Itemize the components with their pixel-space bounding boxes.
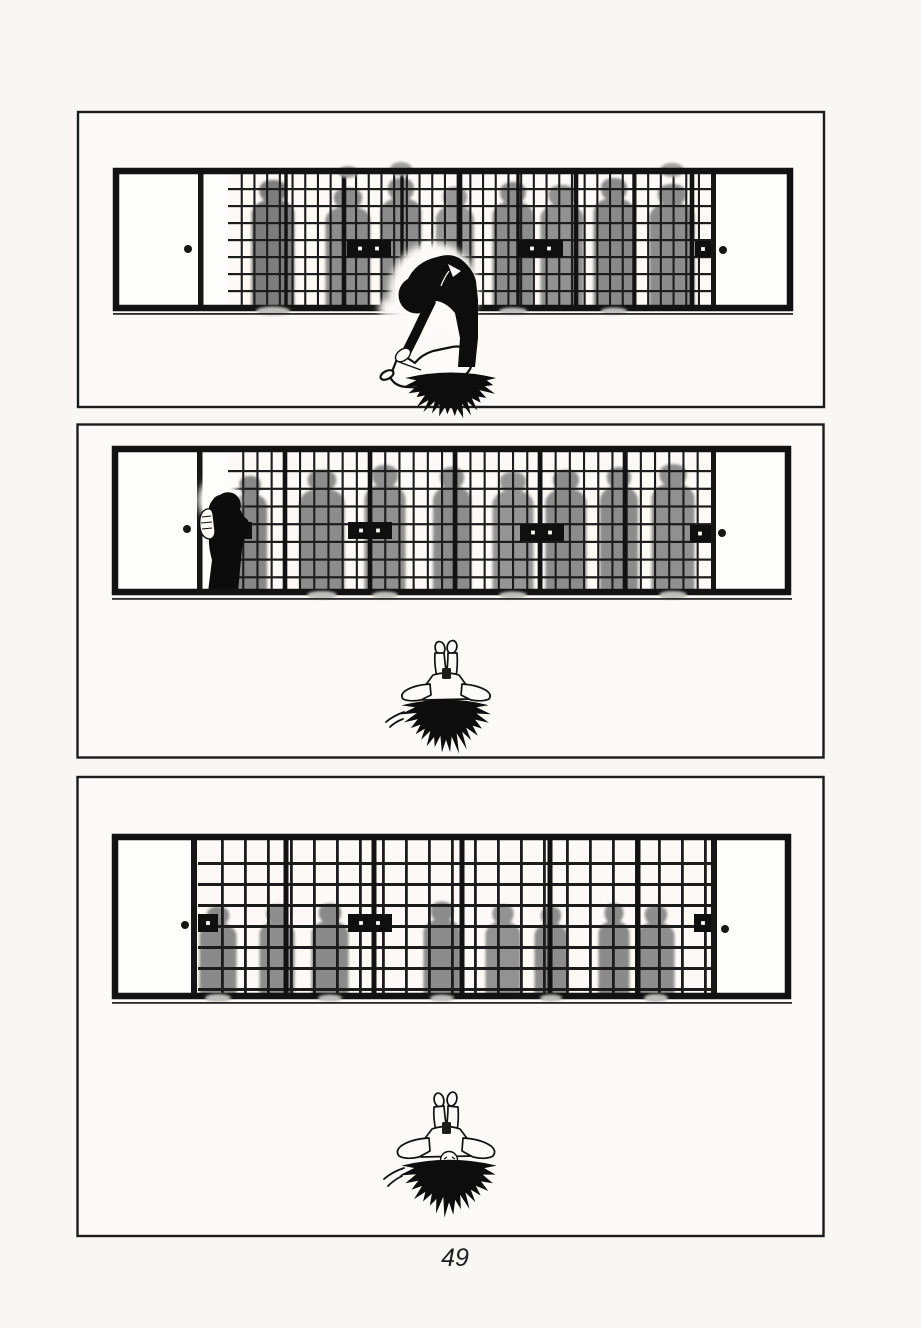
svg-text:49: 49 (441, 1244, 469, 1272)
